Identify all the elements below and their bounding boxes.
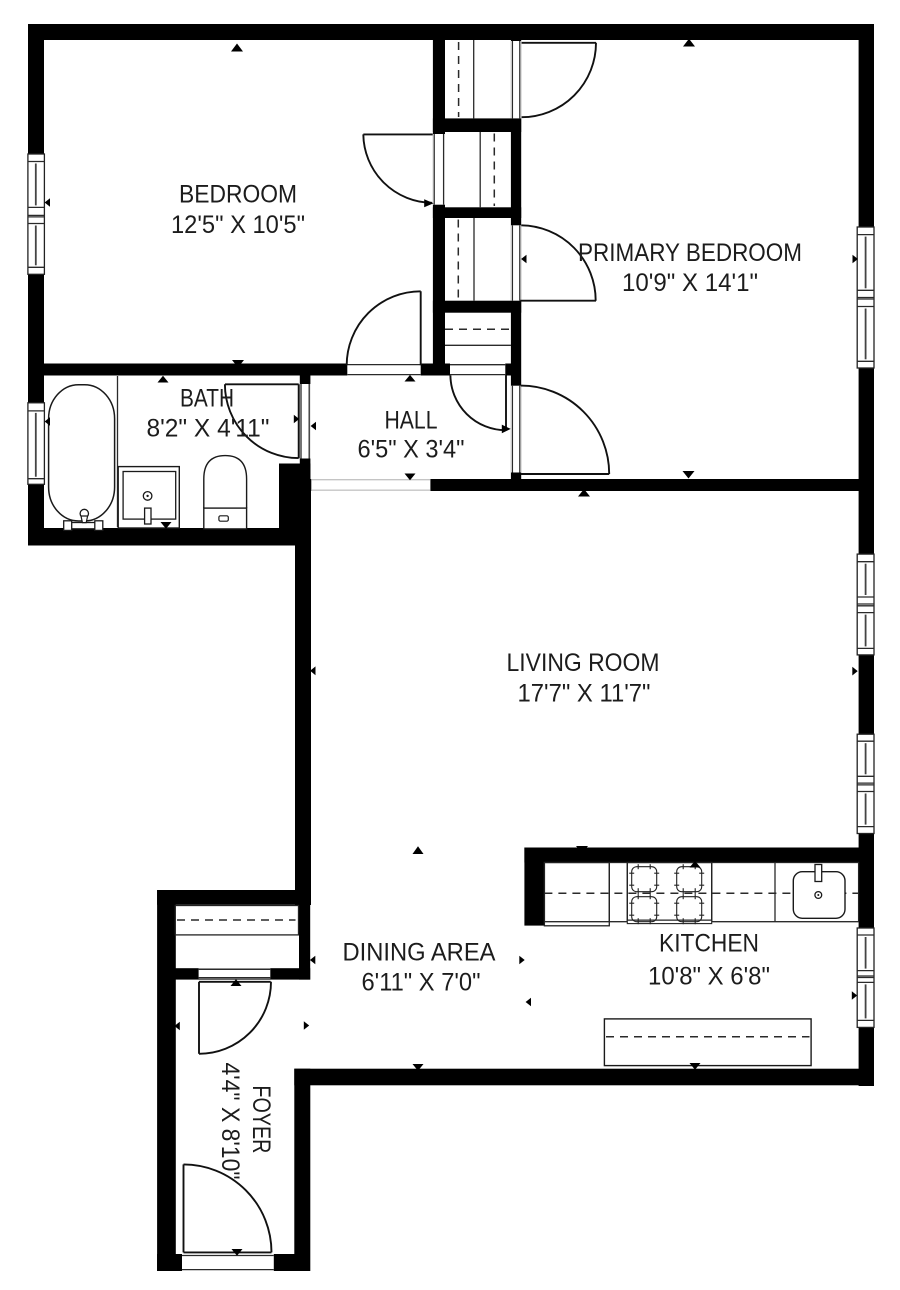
svg-text:12'5" X 10'5": 12'5" X 10'5" <box>171 211 305 239</box>
svg-text:8'2" X 4'11": 8'2" X 4'11" <box>147 415 270 443</box>
svg-text:HALL: HALL <box>385 407 438 435</box>
svg-text:DINING AREA: DINING AREA <box>343 939 496 967</box>
svg-text:LIVING ROOM: LIVING ROOM <box>507 649 660 677</box>
svg-text:BEDROOM: BEDROOM <box>179 181 297 209</box>
svg-text:FOYER: FOYER <box>247 1085 275 1153</box>
svg-text:10'9" X 14'1": 10'9" X 14'1" <box>622 269 758 297</box>
svg-text:17'7" X 11'7": 17'7" X 11'7" <box>518 680 651 708</box>
svg-text:PRIMARY BEDROOM: PRIMARY BEDROOM <box>578 239 802 267</box>
svg-text:BATH: BATH <box>180 385 234 413</box>
svg-text:10'8" X 6'8": 10'8" X 6'8" <box>648 963 770 991</box>
svg-text:4'4" X 8'10": 4'4" X 8'10" <box>216 1063 244 1180</box>
svg-text:KITCHEN: KITCHEN <box>659 930 759 958</box>
svg-text:6'5" X 3'4": 6'5" X 3'4" <box>358 436 465 464</box>
svg-text:6'11" X 7'0": 6'11" X 7'0" <box>362 969 481 997</box>
